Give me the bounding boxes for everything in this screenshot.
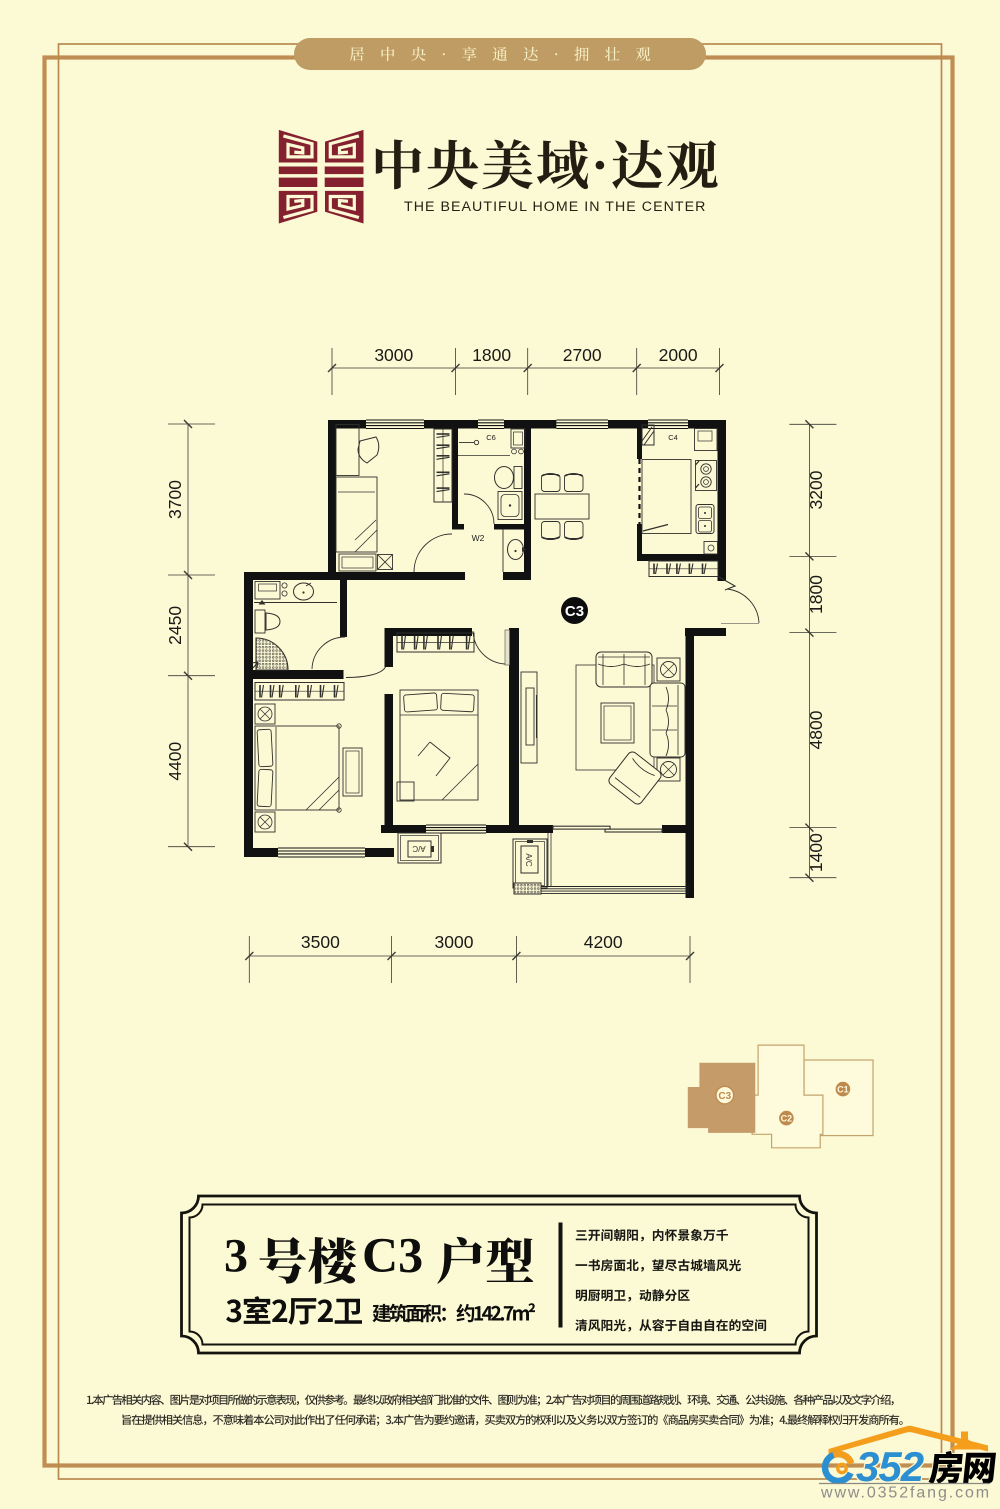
svg-text:C3: C3 — [565, 603, 584, 620]
svg-text:www.0352fang.com: www.0352fang.com — [820, 1485, 991, 1502]
svg-text:THE BEAUTIFUL HOME IN THE CENT: THE BEAUTIFUL HOME IN THE CENTER — [404, 199, 706, 215]
svg-text:C3: C3 — [718, 1091, 731, 1102]
svg-text:W2: W2 — [472, 533, 485, 543]
svg-text:1400: 1400 — [806, 833, 826, 872]
svg-text:4400: 4400 — [165, 741, 185, 780]
svg-text:3500: 3500 — [301, 932, 340, 952]
svg-text:A/C: A/C — [524, 853, 533, 867]
svg-text:1800: 1800 — [806, 575, 826, 614]
svg-text:C6: C6 — [486, 433, 496, 442]
svg-text:2000: 2000 — [659, 345, 698, 365]
svg-text:2700: 2700 — [563, 345, 602, 365]
svg-text:3000: 3000 — [374, 345, 413, 365]
svg-text:C1: C1 — [837, 1084, 849, 1094]
svg-text:A/C: A/C — [412, 844, 426, 853]
svg-text:3: 3 — [224, 1230, 248, 1283]
svg-text:C4: C4 — [668, 433, 678, 442]
svg-text:3200: 3200 — [806, 470, 826, 509]
svg-text:3000: 3000 — [435, 932, 474, 952]
svg-text:4800: 4800 — [806, 710, 826, 749]
svg-text:4200: 4200 — [584, 932, 623, 952]
svg-text:C2: C2 — [781, 1113, 793, 1123]
svg-text:1800: 1800 — [472, 345, 511, 365]
svg-text:3700: 3700 — [165, 480, 185, 519]
svg-text:C3: C3 — [362, 1227, 423, 1283]
svg-text:2450: 2450 — [165, 606, 185, 645]
